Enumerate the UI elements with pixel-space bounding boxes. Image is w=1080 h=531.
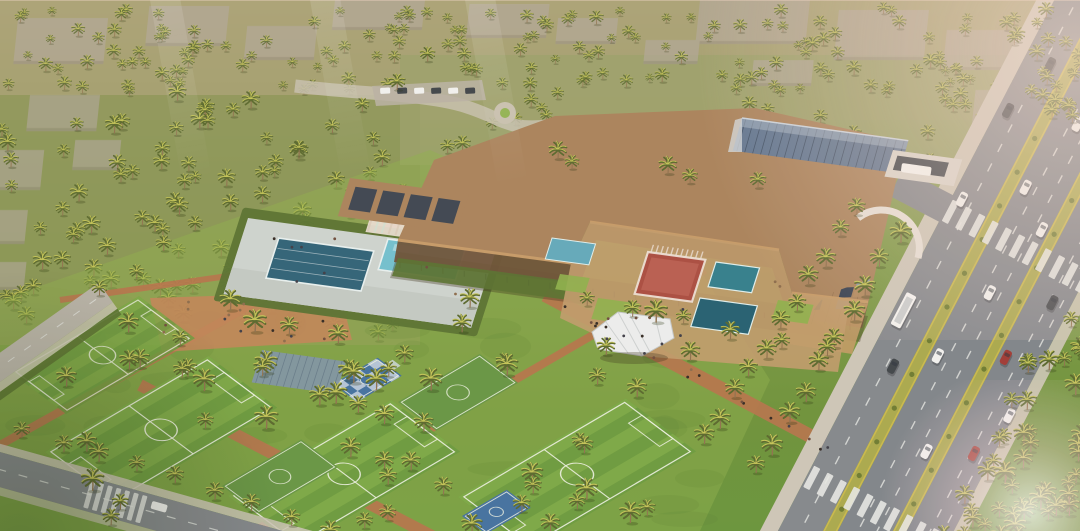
aerial-render: Sunset aerial rendering of a sports-park…	[0, 0, 1080, 531]
light-haze-overlays	[0, 0, 1080, 531]
warm-tint	[0, 0, 1080, 531]
rendering-stage: Sunset aerial rendering of a sports-park…	[0, 0, 1080, 531]
